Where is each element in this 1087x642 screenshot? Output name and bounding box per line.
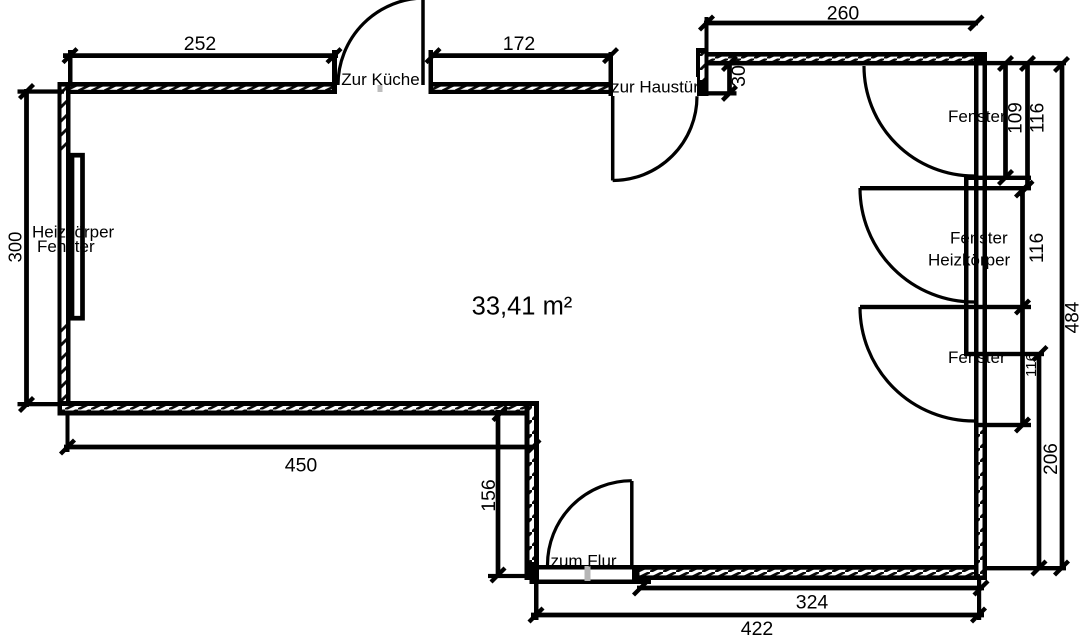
svg-text:Fenster: Fenster <box>948 348 1006 367</box>
svg-text:156: 156 <box>478 479 500 512</box>
svg-text:116: 116 <box>1027 233 1048 263</box>
svg-text:484: 484 <box>1063 301 1084 333</box>
svg-text:116: 116 <box>1028 103 1049 133</box>
svg-text:Fenster: Fenster <box>37 237 95 256</box>
svg-text:422: 422 <box>741 618 774 640</box>
svg-text:30: 30 <box>728 65 750 87</box>
svg-text:172: 172 <box>503 33 536 55</box>
svg-text:450: 450 <box>285 455 318 477</box>
svg-text:33,41 m²: 33,41 m² <box>472 293 573 321</box>
svg-text:Zur Küche: Zur Küche <box>341 70 419 89</box>
svg-text:260: 260 <box>827 3 860 25</box>
svg-text:Fenster: Fenster <box>948 107 1006 126</box>
svg-text:324: 324 <box>796 592 829 614</box>
svg-text:109: 109 <box>1006 102 1027 134</box>
svg-text:zur Haustür: zur Haustür <box>611 78 699 97</box>
svg-text:zum Flur: zum Flur <box>550 552 616 571</box>
svg-text:Fenster: Fenster <box>950 229 1008 248</box>
svg-text:Heizkörper: Heizkörper <box>928 251 1011 270</box>
svg-text:300: 300 <box>5 232 26 263</box>
svg-text:206: 206 <box>1041 443 1062 475</box>
svg-text:252: 252 <box>184 33 217 55</box>
